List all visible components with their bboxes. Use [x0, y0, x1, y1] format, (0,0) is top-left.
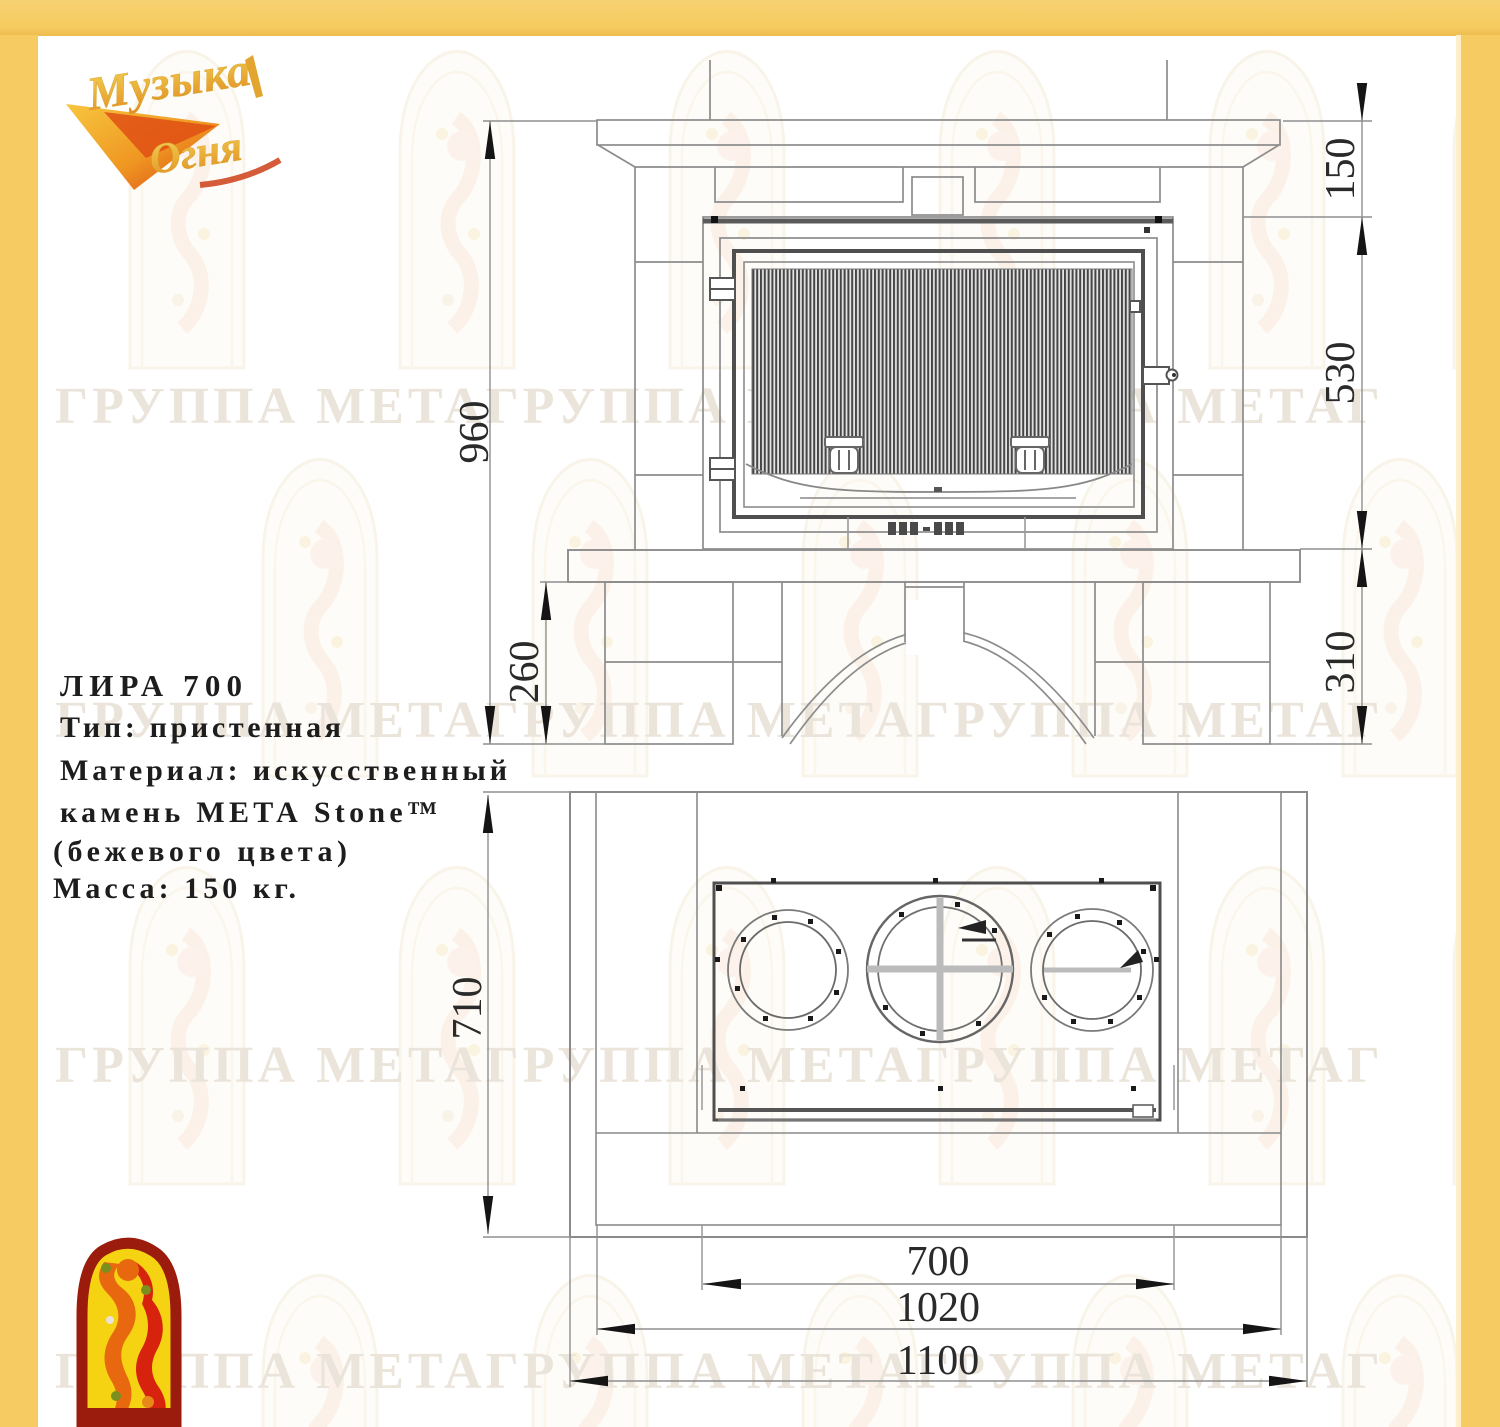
- svg-text:(бежевого цвета): (бежевого цвета): [53, 835, 347, 868]
- svg-text:310: 310: [1318, 631, 1364, 694]
- svg-text:150: 150: [1318, 138, 1364, 201]
- svg-text:700: 700: [907, 1239, 970, 1285]
- svg-text:1020: 1020: [896, 1285, 980, 1331]
- svg-text:ГРУППА МЕТАГРУППА МЕТАГРУППА М: ГРУППА МЕТАГРУППА МЕТАГРУППА МЕТАГ: [55, 1037, 1384, 1094]
- svg-text:1100: 1100: [897, 1338, 979, 1384]
- svg-text:ГРУППА МЕТАГРУППА МЕТАГРУППА М: ГРУППА МЕТАГРУППА МЕТАГРУППА МЕТАГ: [55, 1343, 1384, 1400]
- svg-text:Масса: 150 кг.: Масса: 150 кг.: [53, 872, 296, 905]
- svg-text:260: 260: [502, 641, 548, 704]
- svg-text:530: 530: [1318, 342, 1364, 405]
- svg-text:камень МЕТА Stone™: камень МЕТА Stone™: [60, 796, 437, 829]
- svg-text:960: 960: [452, 401, 498, 464]
- svg-text:710: 710: [445, 977, 491, 1040]
